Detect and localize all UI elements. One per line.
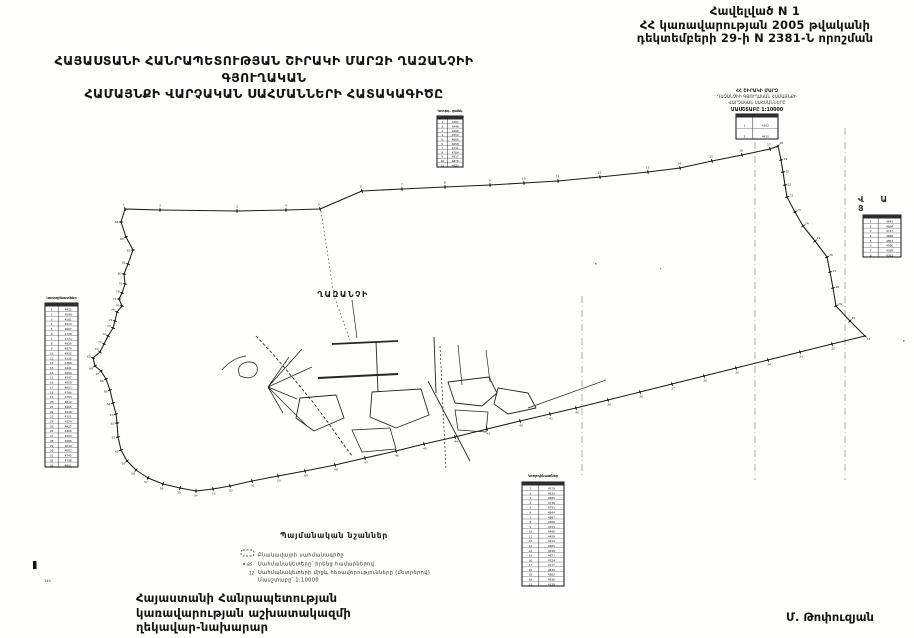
boundary-point-number: 61 [112,436,116,440]
settlement-path [352,300,357,338]
boundary-point [125,236,127,238]
boundary-point [735,367,737,369]
community-boundary: 1234567891011121314151617181920212223242… [87,141,871,498]
legend-title: Պայմանական նշաններ [252,531,416,540]
scan-speck [660,268,661,269]
table-cell: 1 [870,220,872,224]
boundary-point [703,375,705,377]
boundary-point-number: 69 [87,354,91,358]
table-cell: 14 [529,549,533,553]
table-cell: 4480 [65,429,72,433]
table-cell: 4826 [65,342,72,346]
boundary-point [557,180,559,182]
table-cell: 16 [529,558,533,562]
boundary-point [395,450,397,452]
boundary-point-number: 63 [110,413,114,417]
legend-marker-95: 95 [247,562,253,567]
table-cell: 4706 [65,390,72,394]
table-cell: 4388 [65,361,72,365]
boundary-point-number: 42 [519,423,523,427]
boundary-point [105,378,107,380]
boundary-point-number: 70 [95,347,99,351]
table-cell: 3 [870,229,872,233]
boundary-point [116,311,118,313]
table-header-label: Կոորդինատներ [46,296,77,300]
boundary-point [361,190,363,192]
boundary-point-number: 53 [212,491,216,495]
boundary-point [116,422,118,424]
table-cell: 8 [51,342,53,346]
boundary-point [195,490,197,492]
boundary-point-number: 77 [113,297,117,301]
table-cell: 4777 [548,563,555,567]
boundary-point [423,443,425,445]
boundary-point-number: 73 [107,324,111,328]
boundary-point [679,167,681,169]
boundary-point-number: 11 [556,175,560,179]
table-header-band [45,303,78,307]
legend-items: Բնակավայրի սահմանագիծը 95 Սահմանակետերը՝… [241,550,430,584]
corner-mark-label: 140 [44,579,52,583]
table-cell: 4494 [65,371,72,375]
legend-item-4: Մասշտաբը՝ 1:10000 [258,578,319,584]
boundary-point [741,154,743,156]
stamp-line-3: ՎԱՐՉԱԿԱՆ ՍԱՀՄԱՆՆԵՐԸ [728,100,785,105]
boundary-point [251,480,253,482]
boundary-point [103,343,105,345]
boundary-point-number: 29 [838,302,842,306]
boundary-point-number: 3 [236,205,238,209]
boundary-point [236,210,238,212]
legend-symbol-border-point [243,563,245,565]
document-page: Հավելված N 1 ՀՀ կառավարության 2005 թվակա… [0,0,914,638]
table-cell: 4415 [762,134,769,138]
table-cell: 1 [744,124,746,128]
table-cell: 3 [51,317,53,321]
boundary-point-number: 30 [851,316,855,320]
boundary-point-number: 22 [789,193,793,197]
table-cell: 9 [51,347,53,351]
boundary-point-number: 1 [123,203,125,207]
boundary-point-number: 25 [817,236,821,240]
boundary-point [794,211,796,213]
boundary-point-number: 58 [131,471,135,475]
boundary-point-number: 4 [285,204,287,208]
boundary-point [132,249,134,251]
boundary-point-number: 43 [486,431,490,435]
table-cell: 26 [50,429,54,433]
boundary-point [92,357,94,359]
table-cell: 3 [530,496,532,500]
boundary-point [831,343,833,345]
table-cell: 4565 [548,544,555,548]
boundary-point-number: 23 [797,208,801,212]
table-header-band [437,116,463,120]
boundary-point [767,359,769,361]
boundary-point-number: 83 [120,237,124,241]
table-cell: 4791 [548,506,555,510]
boundary-point-number: 26 [829,253,833,257]
table-cell: 4641 [886,220,893,224]
table-cell: 4 [870,234,872,238]
table-cell: 4586 [65,439,72,443]
table-cell: 4533 [65,434,72,438]
table-cell: 4745 [65,454,72,458]
boundary-point [549,413,551,415]
boundary-point [334,464,336,466]
boundary-point [121,305,123,307]
scan-speck [595,263,597,265]
table-cell: 4600 [65,381,72,385]
signature-block: Հայաստանի Հանրապետության կառավարության ա… [136,591,351,635]
table-cell: 22 [50,410,54,414]
table-frame [863,215,901,257]
boundary-point-number: 31 [867,337,871,341]
legend-item-2: Սահմանակետերը՝ իրենց համարներով [258,562,375,568]
boundary-line [93,146,865,491]
table-cell: 4800 [886,234,893,238]
boundary-point-number: 50 [277,478,281,482]
boundary-point [786,196,788,198]
signature-line-3: ղեկավար-նախարար [136,620,351,635]
boundary-point-number: 8 [444,181,446,185]
boundary-point-number: 76 [116,303,120,307]
boundary-point-number: 59 [121,462,125,466]
boundary-point-number: 68 [89,366,93,370]
table-cell: 6 [51,332,53,336]
boundary-point-number: 72 [102,332,106,336]
boundary-point-number: 7 [401,183,403,187]
boundary-point [647,171,649,173]
table-cell: 4335 [65,356,72,360]
table-cell: 4830 [548,568,555,572]
table-cell: 15 [50,376,54,380]
boundary-point [454,436,456,438]
settlement-path [352,428,396,452]
boundary-point [112,402,114,404]
table-cell: 4406 [548,530,555,534]
boundary-point-number: 39 [607,402,611,406]
boundary-point [107,335,109,337]
settlement-parcels [222,211,606,470]
table-cell: 4773 [65,337,72,341]
table-cell: 10 [50,351,54,355]
table-cell: 1 [530,487,532,491]
boundary-point [671,383,673,385]
table-cell: 17 [529,563,533,567]
legend-symbol-settlement-boundary [241,550,254,556]
boundary-point-number: 49 [304,473,308,477]
boundary-point-number: 24 [805,221,809,225]
table-cell: 4694 [886,224,893,228]
table-cell: 4738 [548,501,555,505]
boundary-point-number: 38 [639,394,643,398]
table-frame [736,114,778,139]
table-cell: 4897 [548,515,555,519]
boundary-point [121,292,123,294]
table-cell: 4374 [65,419,72,423]
table-cell: 4508 [65,312,72,316]
table-cell: 24 [50,419,54,423]
legend-item-3: Սահմանակետերի միջև հեռավորությունները (մ… [258,570,430,576]
boundary-point [814,240,816,242]
stamp-table: 1436224415 [736,114,778,139]
table-cell: 4321 [65,415,72,419]
boundary-point-number: 15 [709,155,713,159]
table-cell: 2 [51,312,53,316]
table-cell: 4653 [65,385,72,389]
boundary-point [109,389,111,391]
boundary-point-number: 65 [104,389,108,393]
boundary-point [832,287,834,289]
boundary-point [489,184,491,186]
settlement-path [455,410,488,432]
settlement-path [318,374,398,378]
boundary-point [826,256,828,258]
boundary-point-number: 45 [423,446,427,450]
table-cell: 4844 [548,510,555,514]
table-cell: 11 [440,163,444,167]
table-cell: 4759 [65,395,72,399]
legend-item-1: Բնակավայրի սահմանագիծը [258,553,344,559]
boundary-point-number: 35 [735,370,739,374]
boundary-point [277,475,279,477]
boundary-point-number: 44 [454,439,458,443]
boundary-point [444,186,446,188]
table-header-band [522,482,564,486]
boundary-point-number: 84 [115,220,119,224]
settlement-path [222,356,246,370]
signature-line-2: կառավարության աշխատակազմի [136,606,351,621]
boundary-point [159,209,161,211]
settlement-path [376,341,378,392]
settlement-path [428,381,470,461]
table-header-band [736,114,778,118]
boundary-point [112,327,114,329]
table-cell: 5 [530,506,532,510]
corner-mark: 140 [33,561,52,583]
table-cell: 4459 [548,534,555,538]
table-cell: 4455 [65,308,72,312]
settlement-path [296,395,344,431]
table-cell: 4362 [762,124,769,128]
table-cell: 4812 [65,400,72,404]
boundary-point-number: 27 [833,269,837,273]
table-cell: 29 [50,444,54,448]
boundary-point-number: 28 [836,285,840,289]
boundary-point-number: 51 [251,483,255,487]
boundary-point [147,477,149,479]
table-cell: 4339 [548,582,555,586]
table-cell: 4427 [65,424,72,428]
table-cell: 4547 [65,376,72,380]
boundary-point-number: 41 [549,416,553,420]
boundary-point [784,184,786,186]
table-cell: 4879 [65,347,72,351]
table-cell: 4906 [886,244,893,248]
table-cell: 4883 [548,573,555,577]
table-cell: 12 [529,539,533,543]
boundary-point-number: 40 [575,410,579,414]
boundary-point-number: 54 [194,493,198,497]
table-cell: 4614 [65,322,72,326]
boundary-point [118,298,120,300]
table-cell: 6 [870,244,872,248]
boundary-point-number: 47 [364,460,368,464]
boundary-point-number: 6 [360,185,362,189]
table-cell: 4 [530,501,532,505]
boundary-point-number: 2 [159,204,161,208]
boundary-point [364,457,366,459]
table-cell: 4300 [548,520,555,524]
table-cell: 4724 [548,558,555,562]
table-cell: 18 [529,568,533,572]
boundary-point-number: 55 [177,490,181,494]
boundary-point-number: 21 [788,182,792,186]
table-cell: 4851 [65,463,72,467]
table-cell: 4798 [65,458,72,462]
table-cell: 5 [51,327,53,331]
settlement-path [239,362,258,378]
table-cell: 11 [529,534,533,538]
settlement-path [332,341,398,344]
boundary-point [212,488,214,490]
table-cell: 8 [530,520,532,524]
boundary-point-number: 79 [119,282,123,286]
boundary-point-number: 37 [671,386,675,390]
boundary-point-number: 64 [107,402,111,406]
table-cell: 4441 [65,366,72,370]
table-cell: 2 [744,134,746,138]
boundary-point-number: 16 [739,149,743,153]
boundary-point [99,351,101,353]
coordinate-table-top: 1439324446344994455254605646587471184764… [437,109,463,167]
table-cell: 4639 [65,444,72,448]
table-header-label: Կոորդ. ցանկ [438,109,464,113]
table-cell: 4923 [452,163,459,167]
boundary-point-number: 19 [784,157,788,161]
map-canvas: ՀՀ ՇԻՐԱԿԻ ՄԱՐԶ ՂԱԶԱՆՉԻԻ ԳՅՈՒՂԱԿԱՆ ՀԱՄԱՅՆ… [0,0,914,638]
table-cell: 19 [50,395,54,399]
boundary-point [162,483,164,485]
boundary-point [114,320,116,322]
boundary-point [769,148,771,150]
boundary-point [639,391,641,393]
table-cell: 5 [870,239,872,243]
signature-line-1: Հայաստանի Հանրապետության [136,591,351,606]
table-cell: 31 [50,454,54,458]
table-cell: 4720 [65,332,72,336]
table-cell: 4618 [548,549,555,553]
table-cell: 2 [870,224,872,228]
table-cell: 4932 [65,351,72,355]
table-cell: 8 [870,253,872,257]
table-cell: 10 [529,530,533,534]
table-cell: 4918 [65,410,72,414]
table-cell: 7 [530,515,532,519]
table-cell: 1 [51,308,53,312]
boundary-point [519,420,521,422]
boundary-point-number: 20 [786,169,790,173]
table-cell: 4865 [65,405,72,409]
boundary-point [711,160,713,162]
boundary-point-number: 34 [767,362,771,366]
settlement-path [434,337,436,393]
boundary-point [179,487,181,489]
boundary-point-number: 81 [122,260,126,264]
table-cell: 32 [50,458,54,462]
coordinate-table-right: 1464124694347474480054853649067430984362 [863,215,901,257]
boundary-point [100,370,102,372]
table-cell: 16 [50,381,54,385]
boundary-point [285,209,287,211]
table-cell: 4632 [548,491,555,495]
table-cell: 23 [50,415,54,419]
boundary-point [829,271,831,273]
boundary-point-number: 75 [111,308,115,312]
table-cell: 2 [530,491,532,495]
table-cell: 4309 [886,248,893,252]
table-cell: 13 [50,366,54,370]
boundary-point [849,320,851,322]
boundary-point-number: 60 [115,450,119,454]
table-cell: 11 [50,356,54,360]
table-cell: 13 [529,544,533,548]
boundary-point [120,221,122,223]
table-cell: 7 [870,248,872,252]
boundary-point-number: 52 [229,488,233,492]
boundary-point [523,182,525,184]
table-cell: 20 [50,400,54,404]
boundary-point-number: 17 [767,143,771,147]
boundary-point [117,436,119,438]
table-cell: 4671 [548,554,555,558]
stamp-block: ՀՀ ՇԻՐԱԿԻ ՄԱՐԶ ՂԱԶԱՆՉԻԻ ԳՅՈՒՂԱԿԱՆ ՀԱՄԱՅՆ… [717,88,796,113]
boundary-point [115,413,117,415]
boundary-point [304,470,306,472]
table-cell: 4667 [65,327,72,331]
corner-mark-glyph [33,561,37,569]
boundary-point [575,407,577,409]
boundary-point-number: 62 [111,421,115,425]
settlement-path [321,211,350,340]
table-cell: 9 [530,525,532,529]
table-cell: 4853 [886,239,893,243]
table-cell: 7 [51,337,53,341]
boundary-point-number: 74 [109,318,113,322]
boundary-point-number: 5 [318,203,320,207]
table-cell: 4353 [548,525,555,529]
table-cell: 4 [51,322,53,326]
boundary-point-number: 18 [779,141,783,145]
boundary-point [864,335,866,337]
table-cell: 4936 [548,577,555,581]
table-cell: 21 [50,405,54,409]
settlement-path [370,389,429,428]
table-header-band [863,215,901,219]
stamp-line-2: ՂԱԶԱՆՉԻԻ ԳՅՈՒՂԱԿԱՆ ՀԱՄԱՅՆՔԻ [717,94,796,99]
boundary-point [799,351,801,353]
boundary-point-number: 67 [96,372,100,376]
boundary-point [120,449,122,451]
boundary-point [599,176,601,178]
boundary-point-number: 10 [522,177,526,181]
boundary-point-number: 78 [116,289,120,293]
boundary-point [401,188,403,190]
boundary-point-number: 80 [118,271,122,275]
table-cell: 4747 [886,229,893,233]
table-cell: 27 [50,434,54,438]
